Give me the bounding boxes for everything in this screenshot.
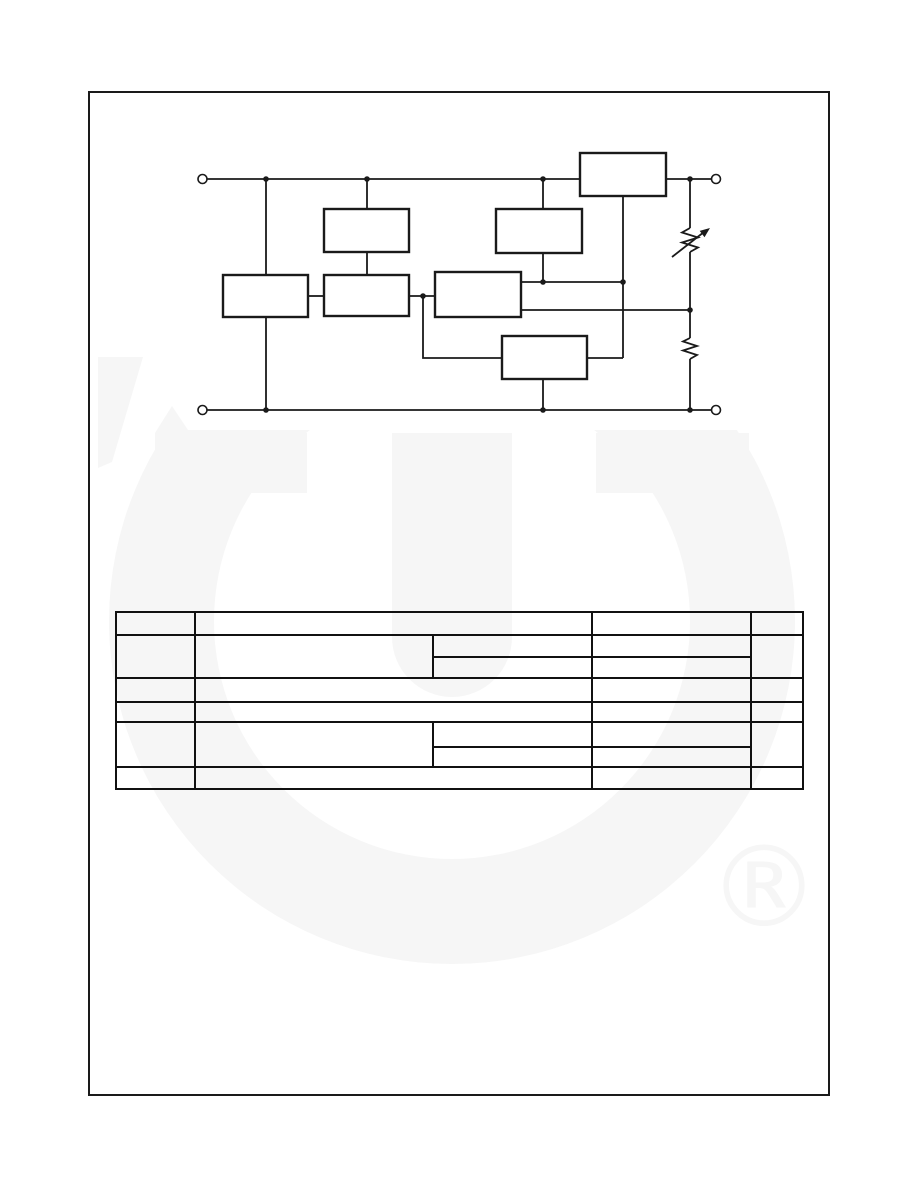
watermark-arm-tip bbox=[155, 406, 190, 433]
watermark-slash-tip bbox=[98, 357, 143, 468]
block-top-right bbox=[580, 153, 666, 196]
terminal-output-bottom-icon bbox=[712, 406, 721, 415]
block-upper-mid-left bbox=[324, 209, 409, 252]
terminal-input-top-icon bbox=[198, 175, 207, 184]
variable-resistor-icon bbox=[672, 228, 710, 257]
variable-resistor-arrow-head bbox=[700, 228, 710, 237]
block-upper-mid-right bbox=[496, 209, 582, 253]
watermark-left-arm-top bbox=[155, 433, 307, 493]
background-watermark: ® bbox=[98, 278, 820, 964]
terminal-input-bottom-icon bbox=[198, 406, 207, 415]
block-diagram bbox=[198, 153, 721, 415]
resistor-icon bbox=[683, 338, 697, 359]
terminal-output-top-icon bbox=[712, 175, 721, 184]
watermark-right-arm-top bbox=[596, 433, 749, 493]
wire-b1-b7-vertical bbox=[587, 196, 623, 358]
page-canvas: ® bbox=[0, 0, 918, 1188]
datasheet-page: ® bbox=[0, 0, 918, 1188]
block-mid-center bbox=[324, 275, 409, 316]
registered-trademark-watermark: ® bbox=[708, 823, 820, 953]
block-mid-left bbox=[223, 275, 308, 317]
variable-resistor-arrow-shaft bbox=[672, 232, 704, 257]
block-bottom bbox=[502, 336, 587, 379]
block-mid-right bbox=[435, 272, 521, 317]
